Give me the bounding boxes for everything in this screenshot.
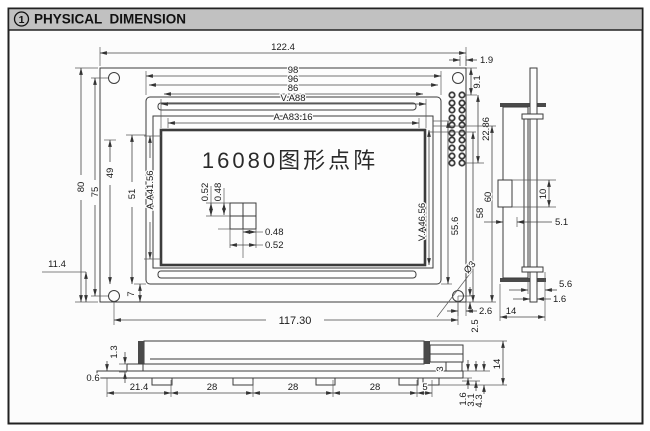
dim-side-pcb-thickness: 1.6 [553,294,566,305]
dim-pitch-28: 28 [207,382,218,393]
display-text: 16080图形点阵 [202,148,378,173]
dim-49: 49 [105,168,116,179]
dim-side-total-depth: 14 [506,306,517,317]
dim-pitch-5: 5 [422,382,427,393]
dim-55-6: 55.6 [450,217,461,236]
side-tab-bottom [522,267,543,272]
dim-hole-x: 2.6 [479,306,492,317]
dim-58: 58 [475,208,486,219]
bottom-end-cap-right [424,341,430,364]
side-top-bar [500,103,546,107]
dot-dim-h2: 0.52 [265,240,284,251]
dim-pin-top: 9.1 [472,75,483,88]
dim-side-5-1: 5.1 [555,217,568,228]
dim-pin-offset: 1.9 [480,55,493,66]
dim-viewing-width: V.A88 [280,93,305,104]
section-number: 1 [19,14,25,26]
dot-dim-v2: 0.48 [213,183,224,202]
dim-mounting-width: 117.30 [279,315,312,327]
dim-51: 51 [127,189,138,200]
bottom-right-block-2 [430,354,463,362]
dim-pitch-28: 28 [288,382,299,393]
dot-dim-h1: 0.48 [265,227,284,238]
bottom-foot [152,378,172,385]
bottom-foot [233,378,253,385]
dim-side-5-6: 5.6 [559,279,572,290]
bottom-end-cap-left [138,341,144,364]
dim-bottom-1-3: 1.3 [109,345,120,358]
dim-pin-span: 22.86 [481,117,492,141]
bottom-body [144,341,424,364]
dot-dim-v1: 0.52 [200,183,211,202]
dim-hole-y: 2.5 [470,319,481,332]
dim-bottom-0-6: 0.6 [86,373,99,384]
bottom-pcb [97,371,463,378]
section-header: 1 PHYSICAL DIMENSION [9,9,643,31]
dim-viewing-height: V.A46.56 [417,203,428,241]
dim-side-10: 10 [538,189,549,200]
frame-slot-bottom [158,271,416,278]
dim-overall-height: 80 [76,182,87,193]
datasheet-page: 1 PHYSICAL DIMENSION 16080图形点阵 [0,0,650,431]
dim-hole-height: 75 [90,187,101,198]
bottom-foot [316,378,335,385]
dim-pitch-28: 28 [370,382,381,393]
side-tab-top [522,114,543,119]
dim-11-4: 11.4 [48,259,66,270]
dim-60: 60 [483,192,494,203]
bottom-foot [399,378,418,385]
mounting-hole [453,73,464,84]
mounting-hole [109,73,120,84]
dim-pitch-21-4: 21.4 [130,382,149,393]
side-bottom-bar [500,278,546,282]
dim-bottom-total: 14 [492,359,503,370]
front-view: 16080图形点阵 0.52 0.48 [42,42,496,333]
dim-bottom-4-3: 4.3 [474,394,485,407]
page-title: PHYSICAL DIMENSION [34,12,186,27]
dim-7: 7 [126,291,137,296]
dim-active-width: A.A83.16 [273,112,312,123]
bottom-right-block-1 [430,345,463,354]
dim-overall-width: 122.4 [271,42,295,53]
dim-bottom-3: 3 [435,366,446,371]
mounting-hole [109,291,120,302]
dim-active-height: A.A41.56 [145,170,156,209]
side-clip [498,180,512,207]
